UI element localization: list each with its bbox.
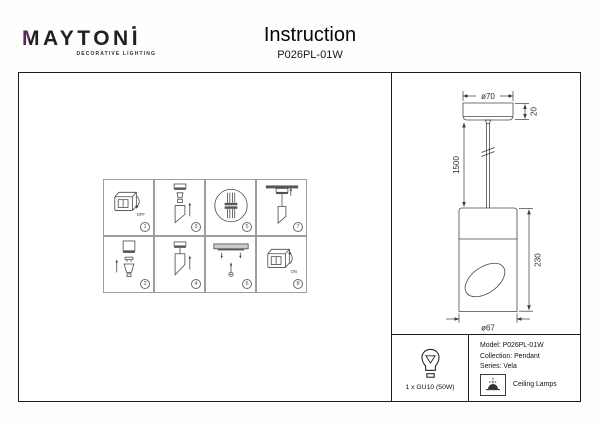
dim-canopy-diameter: ø70 xyxy=(481,92,495,101)
instruction-sheet-frame: OFF 1 3 xyxy=(18,72,581,402)
gu10-bulb-icon xyxy=(418,348,443,381)
step-number: 6 xyxy=(242,279,252,289)
ceiling-lamp-icon xyxy=(484,377,502,393)
spec-series: Series: Vela xyxy=(480,363,580,370)
steps-grid: OFF 1 3 xyxy=(103,179,307,293)
page-title: Instruction xyxy=(225,24,395,46)
svg-text:ON: ON xyxy=(291,269,297,274)
step-cell-ceiling-anchors: 6 xyxy=(205,236,256,293)
step-number: 2 xyxy=(140,279,150,289)
page-model-number: P026PL-01W xyxy=(225,49,395,61)
pendant-dimension-drawing: ø70 20 1500 xyxy=(392,73,582,334)
step-cell-mount-canopy: 7 xyxy=(256,179,307,236)
category-label: Ceiling Lamps xyxy=(513,381,557,388)
product-spec-cell: Model: P026PL-01W Collection: Pendant Se… xyxy=(469,335,580,401)
body-outline xyxy=(459,208,517,312)
logo-letter-m: M xyxy=(22,27,43,50)
maytoni-logo: MAYTONI DECORATIVE LIGHTING xyxy=(22,28,162,57)
logo-wordmark: MAYTONI xyxy=(22,28,162,50)
step-cell-insert-bulb: 2 xyxy=(103,236,154,293)
spec-model: Model: P026PL-01W xyxy=(480,342,580,349)
step-cell-connect-wires: 5 xyxy=(205,179,256,236)
title-block: Instruction P026PL-01W xyxy=(225,24,395,61)
step-cell-attach-parts: 3 xyxy=(154,179,205,236)
canopy-outline xyxy=(463,103,513,120)
dim-canopy-height: 20 xyxy=(530,107,539,116)
ceiling-lamp-iconbox xyxy=(480,374,506,396)
logo-i-dot-icon xyxy=(132,26,136,30)
logo-tagline: DECORATIVE LIGHTING xyxy=(22,51,162,57)
lamp-spec-label: 1 x GU10 (50W) xyxy=(405,384,454,391)
step-number: 1 xyxy=(140,222,150,232)
technical-drawing: ø70 20 1500 xyxy=(392,73,580,334)
step-cell-switch-off: OFF 1 xyxy=(103,179,154,236)
step-number: 5 xyxy=(242,222,252,232)
logo-letters-mid: AYTON xyxy=(43,27,132,50)
spec-collection: Collection: Pendant xyxy=(480,353,580,360)
step-number: 7 xyxy=(293,222,303,232)
svg-text:OFF: OFF xyxy=(137,212,146,217)
step-number: 8 xyxy=(293,279,303,289)
steps-panel: OFF 1 3 xyxy=(19,73,391,401)
category-row: Ceiling Lamps xyxy=(480,374,580,396)
step-number: 4 xyxy=(191,279,201,289)
logo-letter-i: I xyxy=(132,27,141,50)
spec-info-box: 1 x GU10 (50W) Model: P026PL-01W Collect… xyxy=(392,334,580,401)
step-cell-assemble-body: 4 xyxy=(154,236,205,293)
step-cell-switch-on: ON 8 xyxy=(256,236,307,293)
step-number: 3 xyxy=(191,222,201,232)
dim-cord-length: 1500 xyxy=(452,156,461,174)
dim-body-diameter: ø67 xyxy=(481,324,495,333)
dim-body-height: 230 xyxy=(534,253,543,267)
drawing-panel: ø70 20 1500 xyxy=(391,73,580,401)
slant-cut-ellipse xyxy=(459,256,511,303)
lamp-spec-cell: 1 x GU10 (50W) xyxy=(392,335,469,401)
